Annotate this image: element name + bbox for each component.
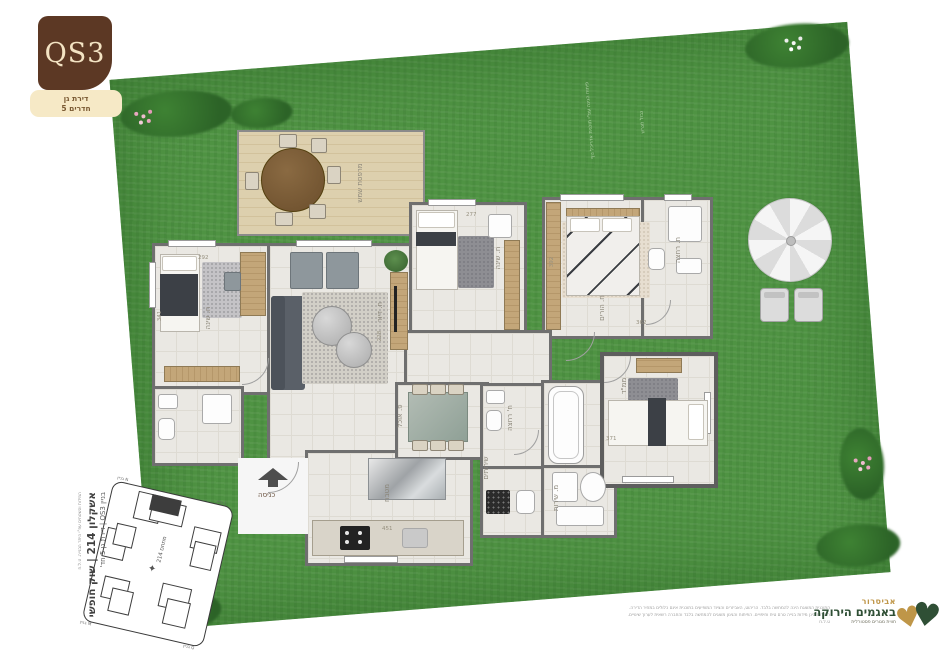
stove bbox=[340, 526, 370, 550]
deck-label: מרפסת שמש bbox=[356, 163, 364, 202]
deck-chair bbox=[279, 134, 297, 148]
apartment-type-label: דירת גן 5 חדרים bbox=[30, 90, 122, 117]
living-label: ח. דיור bbox=[376, 302, 384, 322]
kitchen-island bbox=[368, 458, 446, 500]
plan-caption: המידות והשטחים עפ"י היתר הבנייה. ט.ל.ח א… bbox=[78, 492, 107, 644]
armchair bbox=[290, 252, 323, 289]
sliding-door bbox=[296, 240, 372, 247]
compass-icon: ✦ bbox=[147, 563, 158, 576]
desk-chair bbox=[224, 272, 241, 291]
closet bbox=[504, 240, 520, 330]
tv bbox=[394, 286, 397, 332]
dresser bbox=[164, 366, 240, 382]
rug bbox=[458, 236, 494, 288]
window bbox=[428, 199, 476, 206]
sink bbox=[486, 390, 505, 404]
toilet bbox=[486, 410, 502, 431]
plan-caption-note: המידות והשטחים עפ"י היתר הבנייה. ט.ל.ח bbox=[78, 492, 84, 644]
ensuite-label: ח. רחצה bbox=[674, 237, 682, 263]
dimension: 277 bbox=[466, 212, 477, 218]
window bbox=[168, 240, 216, 247]
dining-label: פ. אוכל bbox=[396, 404, 404, 427]
window bbox=[664, 194, 692, 201]
green-heart-icon: ♥ bbox=[910, 597, 943, 633]
site-building bbox=[189, 541, 216, 571]
deck-chair bbox=[245, 172, 259, 190]
bath-label: ח' רחצה bbox=[506, 405, 514, 431]
dining-chair bbox=[448, 384, 464, 395]
dimension: 371 bbox=[606, 436, 617, 442]
apartment-type-line2: 5 חדרים bbox=[61, 104, 90, 113]
dimension: 341 bbox=[157, 311, 163, 322]
bedroom1-label: ח. שינה bbox=[204, 307, 212, 330]
deck-chair bbox=[309, 204, 326, 219]
blanket bbox=[416, 232, 456, 246]
shower-base bbox=[486, 490, 510, 514]
developer-logo-text: אביסרור באגמים הירוקה חווית מגורים פסטור… bbox=[812, 597, 896, 625]
kitchen-sink bbox=[402, 528, 428, 548]
disclaimer-line: התוכנית המוצגת הינה להמחשה בלבד. הריהוט,… bbox=[558, 606, 830, 613]
toilet bbox=[158, 418, 175, 440]
site-corner-label: בניין N bbox=[117, 475, 129, 482]
blanket bbox=[160, 274, 198, 316]
deck-chair bbox=[275, 212, 293, 226]
sun-deck bbox=[237, 130, 425, 236]
site-building bbox=[112, 523, 136, 549]
garden-note: פיתוח הגינה עפ"י תוכנית אדריכל נוף bbox=[584, 82, 596, 159]
window bbox=[149, 262, 156, 308]
garden-note: גבול מגרש bbox=[639, 111, 647, 134]
master-label: ח. הורים bbox=[598, 295, 606, 321]
window bbox=[344, 556, 398, 563]
toilet bbox=[648, 248, 665, 270]
deck-chair bbox=[327, 166, 341, 184]
patio-chair bbox=[794, 288, 823, 322]
dryer bbox=[580, 472, 606, 502]
dining-table bbox=[408, 392, 468, 442]
tv-console bbox=[390, 272, 408, 350]
brand-tagline: חווית מגורים פסטורלית bbox=[812, 620, 896, 625]
bush bbox=[837, 426, 887, 501]
pillow bbox=[688, 404, 704, 440]
blanket bbox=[648, 398, 666, 446]
desk bbox=[240, 252, 266, 316]
dimension: 362 bbox=[636, 320, 647, 326]
dimension: 451 bbox=[382, 526, 393, 532]
deck-table bbox=[261, 148, 325, 212]
plan-caption-subtitle: בניין QS3 | דירת גן 5 חד' bbox=[99, 492, 107, 644]
plan-caption-title: אשקלון 214 | שוק חופשי bbox=[86, 492, 98, 644]
dining-chair bbox=[448, 440, 464, 451]
window bbox=[560, 194, 624, 201]
sofa-back bbox=[271, 296, 285, 390]
site-corner-label: בניין L bbox=[216, 499, 227, 506]
bush bbox=[229, 96, 293, 131]
counter bbox=[556, 506, 604, 526]
brand-project: באגמים הירוקה bbox=[812, 606, 896, 619]
pillow bbox=[162, 256, 197, 271]
mamad-label: ממ"ד bbox=[620, 378, 628, 395]
dining-chair bbox=[430, 440, 446, 451]
desk bbox=[636, 358, 682, 373]
coffee-table bbox=[336, 332, 372, 368]
apartment-type-line1: דירת גן bbox=[64, 94, 89, 103]
disclaimer-line: ט.ל.ח bbox=[558, 620, 830, 627]
armchair bbox=[326, 252, 359, 289]
bush bbox=[743, 20, 850, 72]
shower bbox=[202, 394, 232, 424]
pillow bbox=[418, 212, 455, 228]
bathtub bbox=[548, 386, 584, 464]
wc-label: שירותים bbox=[482, 456, 490, 479]
site-area-label: מתחם 214 bbox=[156, 536, 168, 564]
dimension: 292 bbox=[198, 255, 209, 261]
dimension: 228 bbox=[377, 331, 383, 342]
deck-chair bbox=[311, 138, 327, 153]
service-label: מ. שירות bbox=[552, 485, 560, 511]
sink bbox=[158, 394, 178, 409]
apartment-badge: QS3 bbox=[38, 16, 112, 90]
legal-disclaimer: התוכנית המוצגת הינה להמחשה בלבד. הריהוט,… bbox=[558, 606, 830, 627]
dining-chair bbox=[412, 384, 428, 395]
toilet bbox=[516, 490, 535, 514]
site-building bbox=[107, 587, 134, 615]
dining-chair bbox=[430, 384, 446, 395]
armchair-white bbox=[488, 214, 512, 238]
dimension: 392 bbox=[549, 257, 555, 268]
apartment-code: QS3 bbox=[45, 38, 106, 69]
patio-chair bbox=[760, 288, 789, 322]
window bbox=[622, 476, 674, 483]
site-corner-label: בניין Q bbox=[183, 643, 195, 650]
site-building bbox=[162, 598, 191, 629]
bush bbox=[815, 521, 902, 569]
dining-chair bbox=[412, 440, 428, 451]
kitchen-label: מטבח bbox=[383, 484, 391, 502]
plant bbox=[384, 250, 408, 272]
pillow bbox=[602, 218, 632, 232]
parasol bbox=[748, 198, 832, 282]
disclaimer-line: המידות הינן מידות בנייה טרם טיח וחיפויים… bbox=[558, 613, 830, 620]
pillow bbox=[570, 218, 600, 232]
bedroom2-label: ח. שינה bbox=[494, 247, 502, 270]
